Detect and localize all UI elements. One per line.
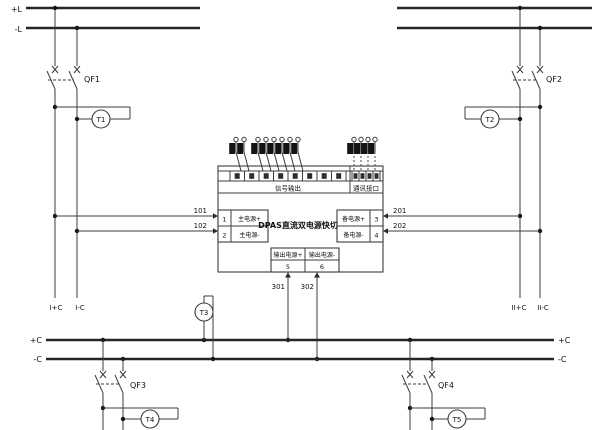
schematic-canvas: +L -L QF1 T1 (0, 0, 600, 430)
terminal-label: 备电源- (343, 231, 363, 239)
terminal-number-mark (235, 173, 240, 179)
voltage-monitor-t2: T2 (465, 105, 542, 128)
wire-tag (361, 143, 367, 154)
lead-pin (264, 137, 268, 141)
terminal-no: 3 (374, 216, 378, 224)
feeder-qf3: QF3 T4 (95, 338, 178, 430)
terminal-number-mark (307, 173, 312, 179)
arrowhead (314, 273, 320, 278)
meter-label: T3 (199, 309, 209, 317)
wire-302: 302 (301, 272, 320, 361)
feeder-label: II-C (537, 304, 549, 312)
breaker-label: QF4 (438, 381, 454, 390)
wire-number: 102 (194, 222, 207, 230)
junction-dot (211, 357, 215, 361)
terminal-label: 输出电源+ (273, 251, 302, 259)
junction-dot (121, 417, 125, 421)
lead-pin (272, 137, 276, 141)
wire-102: 102 (75, 222, 218, 234)
lead-pin (366, 137, 370, 141)
top-left-feeder: +L -L QF1 T1 (11, 5, 218, 312)
wire-101: 101 (53, 207, 218, 219)
breaker-label: QF2 (546, 75, 562, 84)
breaker-label: QF1 (84, 75, 100, 84)
bus-label-pos-L: +L (11, 5, 23, 14)
top-right-feeder: QF2 T2 201 202 II+C II-C (383, 6, 592, 312)
lead-pin (256, 137, 260, 141)
signal-section-label: 信号输出 (275, 184, 301, 193)
wire-301: 301 (272, 272, 291, 342)
wire-tag (251, 143, 257, 154)
module-title: DPAS直流双电源快切 (258, 220, 338, 230)
comm-section-label: 通讯接口 (353, 184, 379, 193)
wire-number: 201 (393, 207, 406, 215)
backup-power-terminal-block: 备电源+ 3 备电源- 4 (337, 210, 383, 242)
junction-dot (538, 26, 542, 30)
terminal-no: 5 (286, 263, 290, 271)
terminal-no: 6 (320, 263, 324, 271)
bus-label-neg-C: -C (34, 355, 43, 364)
terminal-number-mark (361, 173, 365, 179)
wire-number: 302 (301, 283, 314, 291)
wire-tag (229, 143, 235, 154)
feeder-label: I-C (75, 304, 85, 312)
meter-label: T1 (96, 116, 106, 124)
feeder-label: I+C (50, 304, 63, 312)
junction-dot (518, 117, 522, 121)
dpas-module: 信号输出 通讯接口 1 主电源+ 2 主电源- (218, 137, 383, 272)
arrowhead (213, 228, 218, 234)
wire-tag (267, 143, 273, 154)
meter-label: T5 (452, 416, 462, 424)
arrowhead (213, 213, 218, 219)
terminal-number-mark (375, 173, 379, 179)
terminal-number-mark (249, 173, 254, 179)
junction-dot (75, 26, 79, 30)
junction-dot (75, 117, 79, 121)
lead-pin (234, 137, 238, 141)
lead-pin (352, 137, 356, 141)
terminal-no: 2 (222, 232, 226, 240)
terminal-label: 备电源+ (342, 215, 365, 223)
voltage-monitor-t1: T1 (53, 105, 130, 128)
lead-pin (296, 137, 300, 141)
bus-label-neg-L: -L (15, 25, 23, 34)
wire-tag (347, 143, 353, 154)
lead-pin (242, 137, 246, 141)
lead-pin (280, 137, 284, 141)
wire-tag (368, 143, 374, 154)
lead-pin (359, 137, 363, 141)
bottom-bus-section: +C -C +C -C T3 QF3 (30, 296, 571, 430)
terminal-number-mark (354, 173, 358, 179)
dual-power-schematic: +L -L QF1 T1 (0, 0, 600, 430)
terminal-label: 输出电源- (309, 251, 335, 259)
bus-label-neg-C: -C (558, 355, 567, 364)
wire-tag (237, 143, 243, 154)
wire-tag (275, 143, 281, 154)
arrowhead (383, 228, 388, 234)
wire-tag (354, 143, 360, 154)
lead-pin (373, 137, 377, 141)
breaker-label: QF3 (130, 381, 146, 390)
terminal-number-mark (368, 173, 372, 179)
meter-label: T4 (145, 416, 155, 424)
terminal-number-mark (322, 173, 327, 179)
wire-tag (291, 143, 297, 154)
bus-label-pos-C: +C (30, 336, 43, 345)
wire-tag (259, 143, 265, 154)
terminal-number-mark (293, 173, 298, 179)
output-terminal-block: 输出电源+ 输出电源- 5 6 (271, 248, 339, 272)
junction-dot (518, 6, 522, 10)
terminal-label: 主电源- (239, 231, 259, 239)
wire-number: 301 (272, 283, 285, 291)
junction-dot (430, 417, 434, 421)
arrowhead (383, 213, 388, 219)
breaker-qf2: QF2 (512, 66, 562, 89)
wire-202: 202 (383, 222, 542, 234)
terminal-number-mark (264, 173, 269, 179)
wire-number: 101 (194, 207, 207, 215)
wire-tag (283, 143, 289, 154)
terminal-number-mark (336, 173, 341, 179)
meter-label: T2 (485, 116, 495, 124)
terminal-number-mark (278, 173, 283, 179)
lead-pin (288, 137, 292, 141)
feeder-qf4: QF4 T5 (402, 338, 485, 430)
terminal-no: 4 (374, 232, 378, 240)
voltage-monitor-t3: T3 (195, 296, 215, 361)
wire-number: 202 (393, 222, 406, 230)
terminal-no: 1 (222, 216, 226, 224)
wire-201: 201 (383, 207, 522, 219)
junction-dot (53, 6, 57, 10)
feeder-label: II+C (512, 304, 527, 312)
bus-label-pos-C: +C (558, 336, 571, 345)
breaker-qf1: QF1 (47, 66, 100, 89)
arrowhead (285, 273, 291, 278)
